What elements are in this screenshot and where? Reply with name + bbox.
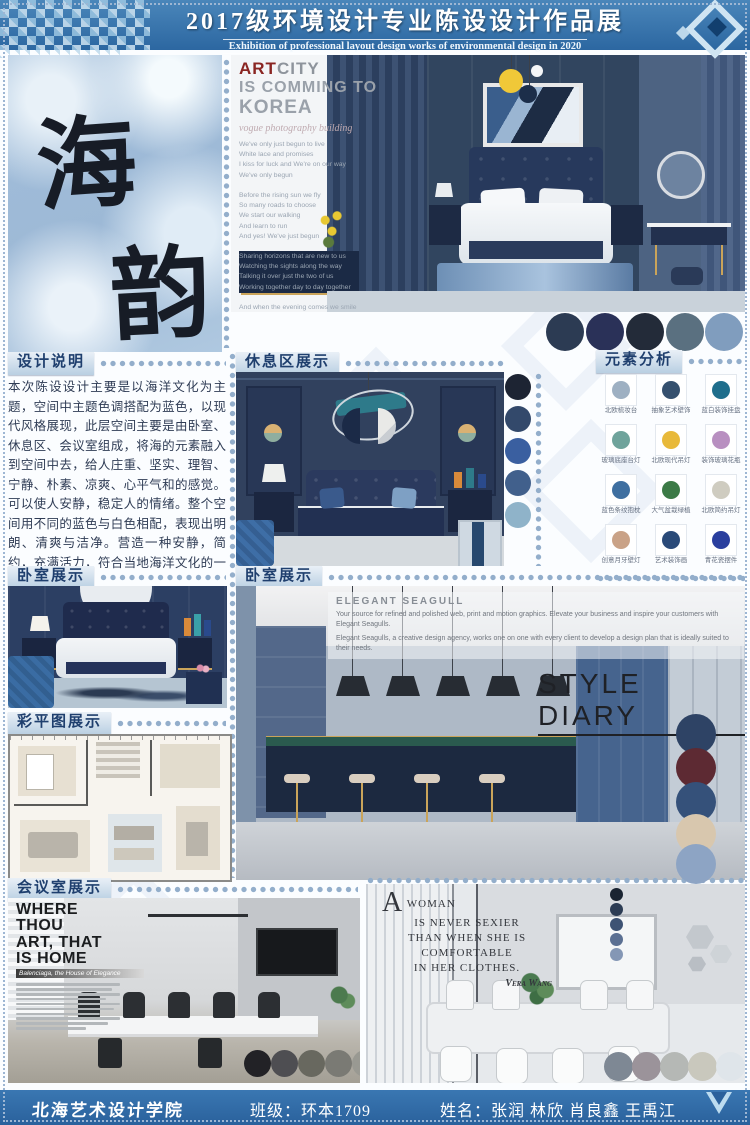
quote-line: THOU: [16, 918, 144, 934]
quote-dropcap: A: [382, 887, 403, 918]
curtain-right: [701, 55, 745, 291]
office-chair: [213, 992, 235, 1018]
throw-pillow: [391, 487, 417, 509]
floorplan-section-heading: 彩平图展示: [8, 712, 111, 735]
palette-swatch: [298, 1050, 325, 1077]
floor: [236, 822, 745, 880]
header-mosaic-decor: [0, 0, 150, 50]
element-thumbnail: [655, 524, 687, 556]
lounge-photo: [236, 372, 504, 566]
palette-swatch: [604, 1052, 633, 1081]
element-label: 北欧简约吊灯: [696, 507, 746, 514]
wall-line: [86, 740, 88, 806]
quote-line: IS NEVER SEXIER: [382, 917, 552, 929]
quote-block-right: A WOMAN IS NEVER SEXIER THAN WHEN SHE IS…: [382, 892, 552, 989]
sea-texture-art-panel: 海 韵: [8, 55, 222, 352]
quote-line: ART, THAT: [16, 935, 144, 951]
dot-swatch: [610, 918, 623, 931]
dot-swatch: [610, 933, 623, 946]
palette-swatch: [676, 844, 716, 884]
pendant-lamp: [386, 676, 420, 696]
brand-paragraph-2: Elegant Seagulls, a creative design agen…: [336, 634, 736, 654]
palette-swatch: [688, 1052, 717, 1081]
palette-swatch: [632, 1052, 661, 1081]
palette-swatch: [505, 374, 531, 400]
nightstand: [611, 205, 643, 245]
palette-swatch: [505, 502, 531, 528]
element-label: 创意月牙壁灯: [596, 557, 646, 564]
decor-bottle: [454, 472, 462, 488]
wall-sconce: [264, 424, 282, 442]
plan-coffee-table: [114, 848, 154, 860]
meeting-room-photo-right: A WOMAN IS NEVER SEXIER THAN WHEN SHE IS…: [366, 884, 745, 1083]
blue-pillow: [236, 520, 274, 566]
white-chair: [580, 980, 608, 1010]
daybed-seat: [298, 506, 444, 538]
glass-art-case: [458, 520, 502, 566]
floorplan-drawing: [8, 734, 232, 882]
crown-molding: [236, 378, 504, 380]
room-lounge: [160, 744, 220, 788]
quote-author: Vera Wang: [382, 978, 552, 989]
quote-line: IN HER CLOTHES.: [382, 962, 552, 974]
element-label: 北欧现代吊灯: [646, 457, 696, 464]
brand-paragraph-1: Your source for refined and polished web…: [336, 610, 736, 630]
palette-swatch: [705, 313, 743, 351]
dotted-divider-vertical: [222, 58, 231, 348]
element-thumbnail: [605, 424, 637, 456]
element-thumbnail: [705, 474, 737, 506]
element-thumbnail: [655, 474, 687, 506]
element-thumbnail: [605, 474, 637, 506]
office-chair: [198, 1038, 222, 1068]
school-name: 北海艺术设计学院: [31, 1096, 185, 1121]
bedroom-photo: [8, 586, 227, 708]
plan-stairs: [96, 742, 140, 778]
office-chair: [168, 992, 190, 1018]
palette-swatch: [325, 1050, 352, 1077]
element-thumbnail: [605, 524, 637, 556]
element-thumbnail: [705, 424, 737, 456]
quote-line: COMFORTABLE: [382, 947, 552, 959]
wall-line: [14, 804, 88, 806]
tv-screen: [256, 928, 338, 976]
palette-swatch: [352, 1050, 360, 1077]
element-thumbnail: [655, 374, 687, 406]
bed-runner: [66, 662, 166, 674]
palette-swatch: [666, 313, 704, 351]
dot-swatch: [610, 903, 623, 916]
element-thumbnail: [605, 374, 637, 406]
plan-sofa: [114, 826, 154, 840]
linear-pendant-light: [148, 914, 248, 917]
palette-swatch: [505, 406, 531, 432]
element-label: 蓝白装饰挂盘: [696, 407, 746, 414]
element-thumbnail: [705, 524, 737, 556]
dimension-ticks: [10, 736, 230, 740]
bar-stool-seat: [414, 774, 440, 783]
body-text-skeleton: [16, 983, 120, 1030]
elements-section-heading: 元素分析: [596, 350, 682, 373]
dotted-leader: [344, 359, 504, 368]
palette-swatch: [660, 1052, 689, 1081]
decor-bottle: [466, 468, 474, 488]
art-line2: IS COMMING TO: [239, 79, 409, 97]
meeting-room-photo-left: WHERE THOU ART, THAT IS HOME Balenciaga,…: [8, 898, 360, 1083]
footer-band: 北海艺术设计学院 班级：环本1709 姓名：张润 林欣 肖良鑫 王禹江: [0, 1090, 750, 1125]
plan-table: [28, 832, 78, 858]
potted-plant: [328, 986, 356, 1016]
nightstand: [429, 205, 461, 245]
palette-swatch: [716, 1052, 745, 1081]
element-label: 蓝色条纹抱枕: [596, 507, 646, 514]
design-notes-heading: 设计说明: [8, 352, 94, 375]
decor-bottle: [478, 474, 486, 488]
style-diary-photo: ELEGANT SEAGULL Your source for refined …: [236, 586, 745, 880]
palette-swatch: [546, 313, 584, 351]
dotted-leader: [99, 573, 226, 582]
brand-text-block: ELEGANT SEAGULL Your source for refined …: [328, 592, 744, 659]
poster-title: 2017级环境设计专业陈设设计作品展: [160, 1, 650, 36]
quote-subtitle: Balenciaga, the House of Elegance: [16, 969, 144, 978]
dotted-leader: [687, 357, 745, 366]
class-info: 班级：环本1709: [250, 1097, 371, 1121]
projector-screen: [556, 914, 657, 990]
pendant-lamp: [336, 676, 370, 696]
poster: 2017级环境设计专业陈设设计作品展 Exhibition of profess…: [0, 0, 750, 1125]
poster-subtitle: Exhibition of professional layout design…: [223, 39, 588, 54]
plan-bed: [26, 754, 54, 790]
throw-pillow: [319, 487, 345, 509]
palette-swatch: [271, 1050, 298, 1077]
dotted-leader: [116, 885, 358, 894]
element-label: 装饰玻璃花瓶: [696, 457, 746, 464]
pendant-lamp: [486, 676, 520, 696]
vanity-leg: [655, 245, 657, 275]
dot-swatch: [610, 888, 623, 901]
bar-stool-seat: [349, 774, 375, 783]
wall-line: [150, 740, 152, 796]
flowers: [196, 664, 210, 674]
white-chair: [552, 1048, 584, 1083]
element-label: 北欧梳妆台: [596, 407, 646, 414]
dotted-leader: [99, 359, 226, 368]
vanity-drawers: [651, 227, 727, 245]
blue-pillow: [8, 656, 54, 708]
palette-swatch: [505, 438, 531, 464]
decor-bottle: [194, 614, 201, 636]
office-chair: [98, 1038, 122, 1068]
small-table: [186, 672, 222, 704]
decor-bottle: [184, 618, 191, 636]
art-city-rest: CITY: [277, 59, 320, 78]
quote-line: WOMAN: [407, 898, 456, 910]
dotted-divider-vertical: [534, 372, 543, 566]
palette-swatch: [505, 470, 531, 496]
design-notes-body: 本次陈设设计主要是以海洋文化为主题，空间中主题色调搭配为蓝色，以现代风格展现，此…: [8, 378, 226, 564]
decor-bottle: [204, 620, 211, 636]
pendant-lamp: [436, 676, 470, 696]
hero-photo: ARTCITY IS COMMING TO KOREA vogue photog…: [231, 55, 745, 312]
plan-dining-table: [186, 822, 208, 856]
header-band: 2017级环境设计专业陈设设计作品展 Exhibition of profess…: [0, 0, 750, 50]
bar-stool-seat: [479, 774, 505, 783]
calligraphy-char-rhyme: 韵: [106, 210, 213, 352]
white-chair: [440, 1046, 472, 1082]
element-label: 艺术装饰画: [646, 557, 696, 564]
quote-block-left: WHERE THOU ART, THAT IS HOME Balenciaga,…: [16, 902, 144, 1032]
vanity-leg: [721, 245, 723, 275]
pendant-lamp-navy: [519, 85, 537, 103]
element-label: 大气盆栽绿植: [646, 507, 696, 514]
table-lamp: [262, 464, 286, 482]
element-label: 青花瓷摆件: [696, 557, 746, 564]
wall-sconce: [458, 424, 476, 442]
bar-stool-seat: [284, 774, 310, 783]
element-thumbnail: [705, 374, 737, 406]
hero-lyrics: We've only just begun to live White lace…: [239, 140, 409, 312]
pendant-lamp-white: [531, 65, 543, 77]
plan-carpet: [108, 814, 162, 872]
elements-grid: 北欧梳妆台 抽象艺术壁饰 蓝白装饰挂盘 玻璃底座台灯 北欧现代吊灯 装饰玻璃花瓶…: [596, 372, 746, 572]
vanity-stool: [671, 267, 703, 285]
dotted-leader: [116, 719, 226, 728]
dot-swatch: [610, 948, 623, 961]
art-city-accent: ART: [239, 59, 277, 78]
brand-heading: ELEGANT SEAGULL: [336, 596, 736, 607]
calligraphy-char-sea: 海: [31, 80, 141, 232]
vanity-mirror: [657, 151, 705, 199]
white-chair: [626, 980, 654, 1010]
quote-line: IS HOME: [16, 951, 144, 967]
names-info: 姓名：张润 林欣 肖良鑫 王禹江: [440, 1097, 676, 1121]
element-label: 玻璃底座台灯: [596, 457, 646, 464]
quote-line: WHERE: [16, 902, 144, 918]
palette-swatch: [244, 1050, 271, 1077]
element-label: 抽象艺术壁饰: [646, 407, 696, 414]
table-lamp: [30, 616, 50, 631]
quote-line: THAN WHEN SHE IS: [382, 932, 552, 944]
dotted-leader: [327, 573, 745, 582]
table-lamp: [435, 183, 453, 197]
art-tagline: vogue photography building: [239, 123, 409, 134]
pendant-stem: [529, 55, 530, 89]
palette-swatch: [586, 313, 624, 351]
bed-runner: [469, 241, 603, 259]
white-chair: [496, 1048, 528, 1083]
element-thumbnail: [655, 424, 687, 456]
office-chair: [258, 992, 280, 1018]
art-line3: KOREA: [239, 97, 409, 119]
palette-swatch: [626, 313, 664, 351]
